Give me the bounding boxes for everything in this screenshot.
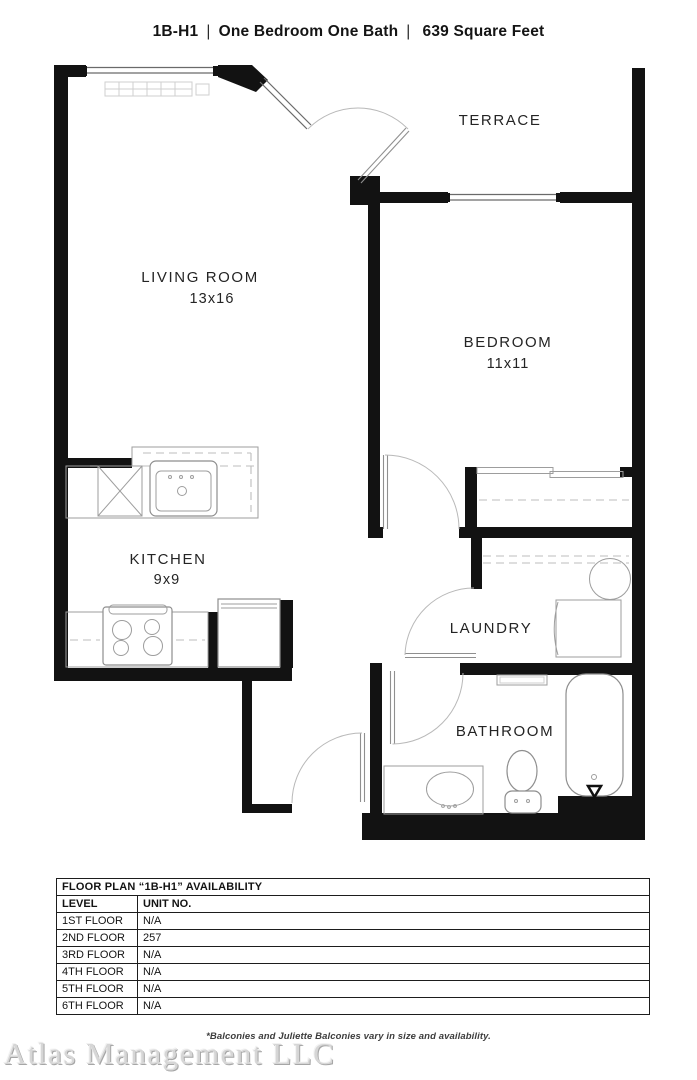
level-cell: 5TH FLOOR <box>57 981 138 998</box>
laundry-shelf <box>483 556 629 563</box>
unit-cell: N/A <box>138 998 650 1015</box>
table-row: 5TH FLOOR N/A <box>57 981 650 998</box>
dryer <box>554 600 621 657</box>
table-title: FLOOR PLAN “1B-H1” AVAILABILITY <box>57 879 650 896</box>
unit-cell: 257 <box>138 930 650 947</box>
table-row: 4TH FLOOR N/A <box>57 964 650 981</box>
availability-table: FLOOR PLAN “1B-H1” AVAILABILITY LEVEL UN… <box>56 878 650 1015</box>
terrace-door <box>260 78 409 183</box>
room-labels: LIVING ROOM 13x16 TERRACE BEDROOM 11x11 … <box>129 112 554 740</box>
column-header-unit: UNIT NO. <box>138 896 650 913</box>
bathtub <box>566 674 623 797</box>
bathroom-label: BATHROOM <box>456 723 554 740</box>
range <box>66 605 208 667</box>
table-title-row: FLOOR PLAN “1B-H1” AVAILABILITY <box>57 879 650 896</box>
washer <box>590 559 631 600</box>
toilet <box>505 751 541 814</box>
level-cell: 6TH FLOOR <box>57 998 138 1015</box>
walls <box>54 65 645 840</box>
bedroom-window <box>446 193 560 202</box>
living-room-label: LIVING ROOM <box>141 269 259 286</box>
laundry-label: LAUNDRY <box>450 620 533 637</box>
kitchen-sink <box>150 461 217 516</box>
kitchen-dimensions: 9x9 <box>154 572 181 588</box>
dishwasher <box>98 466 142 516</box>
level-cell: 4TH FLOOR <box>57 964 138 981</box>
table-header-row: LEVEL UNIT NO. <box>57 896 650 913</box>
living-room-window <box>82 66 218 76</box>
unit-cell: N/A <box>138 964 650 981</box>
table-row: 1ST FLOOR N/A <box>57 913 650 930</box>
bathroom-door <box>391 671 464 744</box>
baseboard-heater <box>105 82 209 96</box>
unit-cell: N/A <box>138 981 650 998</box>
bedroom-dimensions: 11x11 <box>487 356 530 372</box>
table-row: 2ND FLOOR 257 <box>57 930 650 947</box>
living-room-dimensions: 13x16 <box>189 291 234 307</box>
level-cell: 2ND FLOOR <box>57 930 138 947</box>
column-header-level: LEVEL <box>57 896 138 913</box>
entry-door <box>292 733 365 803</box>
closet-sliding-doors <box>477 468 629 501</box>
bathroom-niche <box>497 675 547 685</box>
floor-plan-sheet: 1B-H1|One Bedroom One Bath|639 Square Fe… <box>0 0 697 1080</box>
table-row: 6TH FLOOR N/A <box>57 998 650 1015</box>
floor-plan-drawing: LIVING ROOM 13x16 TERRACE BEDROOM 11x11 … <box>0 0 697 860</box>
watermark: Atlas Management LLC <box>4 1036 335 1072</box>
kitchen-label: KITCHEN <box>129 551 206 568</box>
unit-cell: N/A <box>138 947 650 964</box>
vanity-sink <box>384 766 483 814</box>
bedroom-door <box>384 455 460 529</box>
unit-cell: N/A <box>138 913 650 930</box>
terrace-label: TERRACE <box>459 112 542 129</box>
level-cell: 1ST FLOOR <box>57 913 138 930</box>
bedroom-label: BEDROOM <box>464 334 553 351</box>
level-cell: 3RD FLOOR <box>57 947 138 964</box>
refrigerator <box>218 599 280 667</box>
table-row: 3RD FLOOR N/A <box>57 947 650 964</box>
